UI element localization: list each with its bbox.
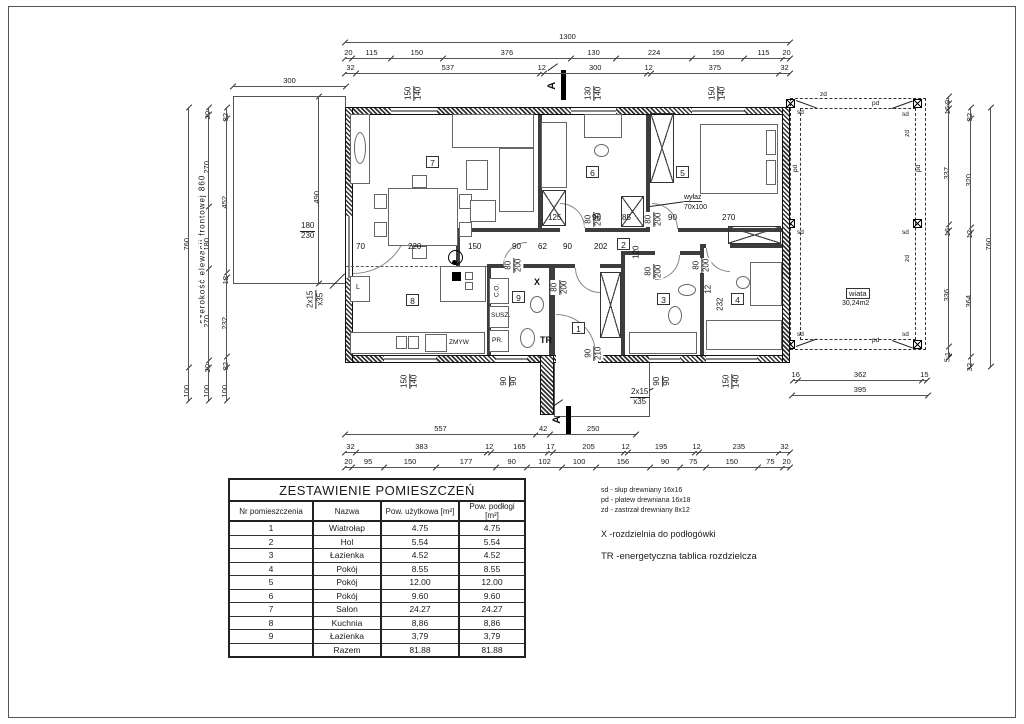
purlin-label: pd [872, 101, 879, 108]
interior-dim: 90 [592, 214, 601, 222]
dim-value: 232 [221, 316, 230, 331]
toilet-bath9 [520, 328, 535, 348]
window-size-label: 150140 [404, 86, 423, 101]
dim-segment: 383 [356, 442, 487, 456]
wall-corridor [585, 228, 650, 232]
dim-chain-carport-a: 1636215 [793, 370, 927, 384]
dim-chain-carport-b: 395 [792, 385, 928, 399]
dim-value: 300 [588, 63, 603, 72]
dim-value: 150 [410, 48, 425, 57]
wall-hall-bath3 [621, 255, 625, 355]
post-label: sd [902, 332, 909, 339]
dim-chain-left-total: 760100 [178, 107, 192, 401]
legend-tr-note: TR -energetyczna tablica rozdzielcza [601, 551, 821, 562]
bed-room4 [706, 320, 782, 350]
room-number-2: 2 [617, 238, 630, 250]
pillow [766, 160, 776, 185]
brace-label: zd [905, 130, 912, 137]
dim-segment: 490 [308, 96, 322, 284]
dim-segment: 364 [960, 232, 974, 357]
dim-value: 250 [586, 424, 601, 433]
washer-label: PR. [492, 338, 503, 345]
dim-chain-bottom-partial: 55742250 [345, 424, 636, 438]
dim-value: 95 [363, 457, 373, 466]
table-cell: 12.00 [459, 576, 525, 590]
dim-value: 490 [313, 190, 322, 205]
table-header-row: Nr pomieszczeniaNazwaPow. użytkowa [m²]P… [229, 501, 525, 521]
door-size-label: 80200 [644, 212, 663, 227]
dim-chain-bottom-b: 20951501779010210015690751507520 [345, 457, 790, 471]
legend-line: zd - zastrzał drewniany 8x12 [601, 506, 821, 516]
dim-value: 150 [403, 457, 418, 466]
dim-segment: 165 [491, 442, 547, 456]
table-cell: 8.55 [381, 562, 459, 576]
dim-value: 336 [943, 288, 952, 303]
interior-dim: 220 [408, 243, 421, 251]
dim-value: 32 [779, 442, 789, 451]
room-number-7: 7 [426, 156, 439, 168]
dim-value: 115 [756, 48, 770, 57]
table-row: 6Pokój9.609.60 [229, 589, 525, 603]
section-marker-letter: A [547, 82, 559, 90]
table-cell: 4 [229, 562, 313, 576]
toilet-bath3 [668, 306, 682, 325]
dim-segment: 95 [352, 457, 385, 471]
room-number-6: 6 [586, 166, 599, 178]
table-row: 7Salon24.2724.27 [229, 603, 525, 617]
dim-segment: 150 [384, 457, 435, 471]
cooker-hood [452, 272, 461, 281]
table-row: Razem81.8881.88 [229, 643, 525, 657]
dim-segment: 250 [550, 424, 636, 438]
dim-segment: 1300 [345, 32, 790, 46]
dim-segment: 235 [699, 442, 779, 456]
table-cell: 12.00 [381, 576, 459, 590]
burner [465, 282, 473, 290]
dim-segment: 300 [544, 63, 647, 77]
post-label: sd [797, 230, 804, 237]
entry-door-size-label: 90210 [584, 346, 603, 361]
table-cell: Pokój [313, 576, 381, 590]
carport-label: wiata [846, 288, 870, 299]
legend: sd - słup drewniany 16x16pd - płatew dre… [601, 486, 821, 562]
dim-segment: 130 [571, 48, 616, 62]
dim-value: 102 [537, 457, 552, 466]
bathtub [629, 332, 697, 354]
window-salon-top [391, 107, 437, 115]
sink-bath9 [530, 296, 544, 313]
table-cell: 24.27 [381, 603, 459, 617]
table-cell: 81.88 [459, 643, 525, 657]
dim-chain-right-outer: 760 [980, 107, 994, 367]
table-cell: 8 [229, 616, 313, 630]
dim-value: 90 [507, 457, 517, 466]
dim-value: 42 [538, 424, 548, 433]
door-size-label: 80200 [550, 280, 569, 295]
dim-value: 90 [660, 457, 670, 466]
room-number-9: 9 [512, 291, 525, 303]
table-cell: Łazienka [313, 630, 381, 644]
interior-dim: 232 [716, 298, 724, 311]
dim-chain-top-a: 2011515037613022415011520 [345, 48, 790, 62]
dim-value: 760 [183, 237, 192, 252]
dim-chain-right-mid: 323201236432 [960, 107, 974, 367]
table-header-cell: Nazwa [313, 501, 381, 521]
wall-corridor [460, 228, 560, 232]
dim-value: 100 [572, 457, 587, 466]
room-number-3: 3 [657, 293, 670, 305]
dim-segment: 100 [562, 457, 596, 471]
legend-x-note: X -rozdzielnia do podłogówki [601, 529, 821, 539]
carport-post [913, 340, 922, 349]
table-cell: 3 [229, 549, 313, 563]
kitchen-peninsula [440, 266, 486, 302]
legend-line: sd - słup drewniany 16x16 [601, 486, 821, 496]
dim-value: 180 [203, 237, 212, 252]
dim-value: 395 [853, 385, 868, 394]
interior-dim: 62 [538, 243, 547, 251]
dim-segment: 760 [980, 107, 994, 367]
sink-bath3 [678, 284, 696, 296]
wall-room4-top [730, 244, 782, 248]
dim-segment: 337 [938, 108, 952, 224]
interior-dim: 270 [722, 214, 735, 222]
table-cell: 4.52 [459, 549, 525, 563]
table-row: 4Pokój8.558.55 [229, 562, 525, 576]
dim-segment: 376 [443, 48, 572, 62]
dim-segment: 150 [391, 48, 442, 62]
dim-segment: 270 [198, 268, 212, 360]
table-row: 1Wiatrołap4.754.75 [229, 521, 525, 535]
sink-bowl [396, 336, 407, 349]
room-number-1: 1 [572, 322, 585, 334]
fridge-label: L [356, 284, 360, 291]
dim-chain-right-inner: 191633716336315 [938, 96, 952, 358]
attic-hatch-label: wyłaz [684, 194, 702, 202]
table-header-cell: Pow. podłogi [m²] [459, 501, 525, 521]
dim-value: 32 [779, 63, 789, 72]
drawing-page: 2x15x35 sd sd sd sd sd sd pd pd pd pd zd… [0, 0, 1024, 724]
wardrobe-room4 [728, 226, 781, 244]
attic-hatch-size: 70x100 [684, 204, 707, 211]
dim-chain-terrace-height: 490 [308, 96, 322, 284]
dim-segment: 115 [744, 48, 783, 62]
dim-segment: 300 [233, 76, 346, 90]
dim-segment: 150 [692, 48, 743, 62]
table-row: 8Kuchnia8,868,86 [229, 616, 525, 630]
purlin-label: pd [793, 165, 800, 172]
dim-segment: 232 [216, 277, 230, 356]
floor-heating-manifold-mark: X [534, 278, 540, 287]
window-size-label: 150140 [722, 374, 741, 389]
dim-value: 75 [688, 457, 698, 466]
table-cell: 5.54 [381, 535, 459, 549]
table-cell: Kuchnia [313, 616, 381, 630]
dim-segment: 760 [178, 107, 192, 367]
dim-value: 376 [500, 48, 515, 57]
table-cell: 5 [229, 576, 313, 590]
interior-dim: 90 [668, 214, 677, 222]
terrace-door-opening [345, 216, 353, 278]
dim-chain-left-b: 324521223232100 [216, 107, 230, 401]
brace-label: zd [905, 255, 912, 262]
dim-segment: 452 [216, 118, 230, 273]
carport-post [913, 99, 922, 108]
table-cell: Pokój [313, 562, 381, 576]
table-cell: 7 [229, 603, 313, 617]
dim-segment: 557 [345, 424, 536, 438]
burner [465, 272, 473, 280]
table-cell: 3,79 [381, 630, 459, 644]
fridge [350, 276, 370, 302]
window-size-label: 9090 [500, 376, 519, 387]
dim-segment: 395 [792, 385, 928, 399]
dim-value: 362 [853, 370, 868, 379]
dim-segment: 90 [496, 457, 527, 471]
interior-dim: 12 [704, 285, 712, 294]
post-label: sd [902, 230, 909, 237]
table-cell [229, 643, 313, 657]
dim-segment: 320 [960, 118, 974, 227]
boiler-label: C.O. [494, 284, 501, 297]
door-size-label: 80200 [692, 258, 711, 273]
chair [412, 175, 427, 188]
dim-value: 100 [203, 384, 212, 399]
room-number-5: 5 [676, 166, 689, 178]
dim-value: 205 [581, 442, 596, 451]
table-cell: 8,86 [381, 616, 459, 630]
closet-hall [600, 272, 621, 338]
table-row: 3Łazienka4.524.52 [229, 549, 525, 563]
dim-value: 270 [203, 160, 212, 175]
table-cell: 3,79 [459, 630, 525, 644]
dim-value: 375 [708, 63, 723, 72]
dim-value: 130 [586, 48, 601, 57]
table-cell: 4.75 [459, 521, 525, 535]
dim-segment: 195 [628, 442, 695, 456]
dim-chain-bottom-a: 323831216517205121951223532 [345, 442, 790, 456]
section-marker-letter: A [552, 416, 564, 424]
table-cell: 24.27 [459, 603, 525, 617]
interior-dim: 125 [548, 214, 561, 222]
desk-chair [594, 144, 609, 157]
table-cell: 5.54 [459, 535, 525, 549]
dim-value: 224 [647, 48, 662, 57]
brace-label: zd [820, 92, 827, 99]
window-bath9-bottom [496, 355, 527, 363]
dim-value: 270 [203, 314, 212, 329]
window-room5-top [692, 107, 744, 115]
carport-post [913, 219, 922, 228]
table-cell: 9.60 [381, 589, 459, 603]
dim-segment: 177 [436, 457, 497, 471]
dim-value: 115 [365, 48, 379, 57]
table-cell: Hol [313, 535, 381, 549]
table-cell: 6 [229, 589, 313, 603]
dim-chain-top-b: 32537123001237532 [345, 63, 790, 77]
table-cell: Salon [313, 603, 381, 617]
window-kitchen-bottom [384, 355, 436, 363]
dim-value: 1300 [558, 32, 577, 41]
window-size-label: 150140 [400, 374, 419, 389]
window-room4-bottom [706, 355, 757, 363]
coffee-table [466, 160, 488, 190]
dim-value: 195 [654, 442, 669, 451]
dim-chain-top-total: 1300 [345, 32, 790, 46]
table-cell: 9.60 [459, 589, 525, 603]
table-row: 9Łazienka3,793,79 [229, 630, 525, 644]
table-cell: 9 [229, 630, 313, 644]
table-cell: 8,86 [459, 616, 525, 630]
table-cell: 81.88 [381, 643, 459, 657]
room-schedule-table: ZESTAWIENIE POMIESZCZEŃ Nr pomieszczenia… [228, 478, 526, 658]
legend-line: pd - płatew drewniana 16x18 [601, 496, 821, 506]
window-size-label: 9090 [653, 376, 672, 387]
window-bath3-bottom [649, 355, 680, 363]
table-cell: 2 [229, 535, 313, 549]
dim-value: 32 [345, 442, 355, 451]
dim-value: 300 [282, 76, 297, 85]
post-label: sd [902, 112, 909, 119]
interior-dim: 150 [468, 243, 481, 251]
fireplace-insert [354, 132, 366, 164]
dim-value: 452 [221, 195, 230, 210]
dim-value: 156 [616, 457, 631, 466]
table-cell: 8.55 [459, 562, 525, 576]
sofa [452, 114, 534, 148]
table-cell: Razem [313, 643, 381, 657]
table-cell: 1 [229, 521, 313, 535]
desk-chair [736, 276, 750, 289]
post-label: sd [797, 110, 804, 117]
table-title: ZESTAWIENIE POMIESZCZEŃ [229, 479, 525, 501]
dining-table [388, 188, 458, 246]
pillow [766, 130, 776, 155]
room-number-8: 8 [406, 294, 419, 306]
dim-segment: 100 [198, 367, 212, 401]
table-cell: 4.75 [381, 521, 459, 535]
electrical-panel-mark: TR [540, 336, 552, 345]
dim-value: 235 [732, 442, 747, 451]
dim-value: 760 [985, 237, 994, 252]
room-number-4: 4 [731, 293, 744, 305]
legend-abbreviations: sd - słup drewniany 16x16pd - płatew dre… [601, 486, 821, 516]
dim-value: 100 [183, 384, 192, 399]
desk-room6 [584, 114, 622, 138]
door-size-label: 80200 [644, 264, 663, 279]
dim-segment: 180 [198, 206, 212, 268]
dim-segment: 115 [352, 48, 391, 62]
interior-dim: 90 [563, 243, 572, 251]
table-cell: Wiatrołap [313, 521, 381, 535]
table-cell: Pokój [313, 589, 381, 603]
dim-value: 337 [943, 166, 952, 181]
sink-bowl [408, 336, 419, 349]
sofa [499, 148, 534, 212]
interior-dim: 120 [632, 246, 640, 259]
dim-value: 383 [414, 442, 429, 451]
porch-steps-label: 2x15x35 [630, 388, 649, 407]
dim-segment: 156 [596, 457, 649, 471]
carport-area-label: 30,24m2 [842, 300, 869, 307]
dim-value: 150 [725, 457, 740, 466]
chair [374, 222, 387, 237]
exterior-wall-right [782, 107, 790, 363]
dim-value: 537 [441, 63, 456, 72]
dim-segment: 375 [651, 63, 779, 77]
dim-value: 75 [765, 457, 775, 466]
interior-dim: 85 [622, 214, 631, 222]
dim-chain-terrace-width: 300 [233, 76, 346, 90]
dryer-label: SUSZ. [491, 313, 510, 320]
table-cell: Łazienka [313, 549, 381, 563]
window-size-label: 130140 [584, 86, 603, 101]
table-title-row: ZESTAWIENIE POMIESZCZEŃ [229, 479, 525, 501]
table-header-cell: Pow. użytkowa [m²] [381, 501, 459, 521]
chair [459, 222, 472, 237]
desk-room4 [750, 262, 782, 306]
purlin-label: pd [916, 165, 923, 172]
dim-segment: 150 [706, 457, 757, 471]
dim-segment: 362 [798, 370, 921, 384]
table-cell: 4.52 [381, 549, 459, 563]
dim-segment: 336 [938, 230, 952, 346]
dim-value: 177 [459, 457, 474, 466]
dim-segment: 100 [178, 367, 192, 401]
ottoman [470, 200, 496, 222]
purlin-label: pd [872, 338, 879, 345]
dim-value: 320 [965, 173, 974, 188]
dim-segment: 102 [527, 457, 562, 471]
dim-value: 557 [433, 424, 448, 433]
dim-segment: 224 [616, 48, 693, 62]
dim-value: 32 [345, 63, 355, 72]
table-row: 2Hol5.545.54 [229, 535, 525, 549]
dim-value: 150 [711, 48, 726, 57]
dim-value: 165 [512, 442, 527, 451]
table-header-cell: Nr pomieszczenia [229, 501, 313, 521]
table-row: 5Pokój12.0012.00 [229, 576, 525, 590]
wardrobe-room5 [650, 113, 674, 183]
dim-segment: 270 [198, 114, 212, 206]
interior-dim: 202 [594, 243, 607, 251]
bed-room6 [541, 122, 567, 188]
dim-segment: 537 [356, 63, 540, 77]
wall-hall-top [553, 264, 575, 268]
dishwasher [425, 334, 447, 352]
door-size-label: 80200 [504, 258, 523, 273]
post-label: sd [797, 332, 804, 339]
interior-dim: 70 [356, 243, 365, 251]
chair [374, 194, 387, 209]
dishwasher-label: ZMYW [449, 340, 469, 347]
dim-chain-left-a: 2027018027020100 [198, 107, 212, 401]
dim-segment: 90 [650, 457, 681, 471]
terrace-outline [233, 96, 346, 284]
socket-dot [452, 260, 457, 265]
dim-value: 100 [221, 384, 230, 399]
terrace-steps-label: 2x15x35 [306, 290, 325, 309]
dim-segment: 100 [216, 367, 230, 401]
dim-segment: 205 [553, 442, 623, 456]
interior-dim: 90 [512, 243, 521, 251]
dim-value: 364 [965, 294, 974, 309]
window-size-label: 150140 [708, 86, 727, 101]
